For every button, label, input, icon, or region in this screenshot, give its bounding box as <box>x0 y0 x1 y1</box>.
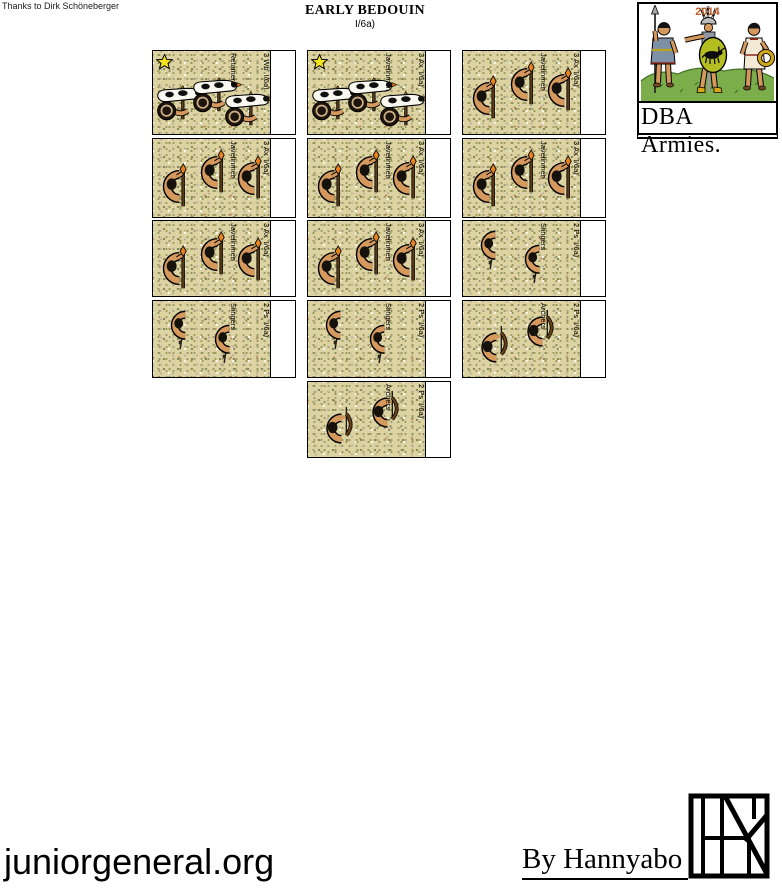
unit-card: 3 Ax I/6a) Javelinmen <box>307 50 451 135</box>
javelinmen-figure-icon <box>313 163 348 211</box>
slingers-figure-icon <box>322 309 353 353</box>
javelinmen-figure-icon <box>313 245 348 293</box>
slingers-figure-icon <box>167 309 198 353</box>
unit-card: 3 Ax I/6a) Javelinmen <box>307 220 451 297</box>
unit-code-label: 2 Ps I/6a) <box>416 384 427 418</box>
unit-label-strip: 3 Ax I/6a) Javelinmen <box>580 51 605 134</box>
unit-card: 3 Ax I/6a) Javelinmen <box>307 138 451 218</box>
unit-name-label: Retainers <box>228 53 239 90</box>
author-credit: By Hannyabo <box>522 843 688 880</box>
army-code: I/6a) <box>165 19 565 30</box>
javelinmen-figure-icon <box>158 245 193 293</box>
slingers-figure-icon <box>477 229 508 273</box>
unit-card: 3 Ax I/6a) Javelinmen <box>462 50 606 135</box>
unit-label-strip: 3 Ax I/6a) Javelinmen <box>425 221 450 296</box>
unit-card: 2 Ps I/6a) Archers <box>462 300 606 378</box>
unit-label-text: 3 Ax I/6a) Javelinmen <box>361 141 449 179</box>
unit-card: 3 Wb I/6a) Retainers <box>152 50 296 135</box>
unit-name-label: Javelinmen <box>228 141 239 179</box>
camel-riders-figure-icon <box>376 91 425 131</box>
unit-name-label: Archers <box>538 303 549 337</box>
unit-name-label: Slingers <box>228 303 239 337</box>
unit-label-strip: 3 Wb I/6a) Retainers <box>270 51 295 134</box>
unit-card: 3 Ax I/6a) Javelinmen <box>462 138 606 218</box>
unit-label-strip: 2 Ps I/6a) Archers <box>580 301 605 377</box>
camel-riders-figure-icon <box>221 91 270 131</box>
unit-code-label: 3 Ax I/6a) <box>261 141 272 179</box>
unit-label-strip: 2 Ps I/6a) Slingers <box>425 301 450 377</box>
credit-note: Thanks to Dirk Schöneberger <box>2 1 119 11</box>
unit-label-text: 2 Ps I/6a) Slingers <box>206 303 294 337</box>
unit-code-label: 3 Ax I/6a) <box>416 223 427 261</box>
unit-card: 3 Ax I/6a) Javelinmen <box>152 220 296 297</box>
unit-code-label: 2 Ps I/6a) <box>416 303 427 337</box>
hannyabo-logo-icon <box>688 792 770 880</box>
unit-label-text: 3 Ax I/6a) Javelinmen <box>516 141 604 179</box>
unit-label-text: 2 Ps I/6a) Slingers <box>361 303 449 337</box>
unit-label-text: 3 Wb I/6a) Retainers <box>206 53 294 90</box>
unit-label-text: 2 Ps I/6a) Archers <box>361 384 449 418</box>
unit-code-label: 3 Wb I/6a) <box>261 53 272 90</box>
unit-label-strip: 2 Ps I/6a) Slingers <box>580 221 605 296</box>
unit-code-label: 2 Ps I/6a) <box>571 223 582 257</box>
unit-code-label: 2 Ps I/6a) <box>261 303 272 337</box>
unit-name-label: Archers <box>383 384 394 418</box>
unit-label-text: 3 Ax I/6a) Javelinmen <box>206 223 294 261</box>
unit-label-text: 2 Ps I/6a) Archers <box>516 303 604 337</box>
general-star-icon <box>156 54 173 70</box>
army-title: EARLY BEDOUIN <box>165 3 565 19</box>
javelinmen-figure-icon <box>158 163 193 211</box>
unit-label-text: 3 Ax I/6a) Javelinmen <box>206 141 294 179</box>
unit-name-label: Slingers <box>383 303 394 337</box>
page-title-block: EARLY BEDOUIN I/6a) <box>165 3 565 30</box>
unit-code-label: 3 Ax I/6a) <box>261 223 272 261</box>
unit-code-label: 3 Ax I/6a) <box>416 53 427 91</box>
archers-figure-icon <box>318 406 359 451</box>
unit-card: 2 Ps I/6a) Archers <box>307 381 451 458</box>
dba-armies-box: 2014 <box>637 2 778 139</box>
unit-card: 2 Ps I/6a) Slingers <box>307 300 451 378</box>
unit-label-strip: 3 Ax I/6a) Javelinmen <box>425 51 450 134</box>
warriors-illustration <box>640 5 775 104</box>
unit-name-label: Javelinmen <box>383 53 394 91</box>
site-name: juniorgeneral.org <box>4 841 274 883</box>
unit-label-text: 3 Ax I/6a) Javelinmen <box>361 53 449 91</box>
archers-figure-icon <box>473 325 514 370</box>
unit-name-label: Javelinmen <box>383 141 394 179</box>
unit-code-label: 3 Ax I/6a) <box>571 53 582 91</box>
javelinmen-figure-icon <box>468 163 503 211</box>
unit-name-label: Javelinmen <box>383 223 394 261</box>
unit-name-label: Slingers <box>538 223 549 257</box>
javelinmen-figure-icon <box>468 75 503 123</box>
unit-name-label: Javelinmen <box>228 223 239 261</box>
unit-label-text: 3 Ax I/6a) Javelinmen <box>516 53 604 91</box>
unit-label-strip: 3 Ax I/6a) Javelinmen <box>425 139 450 217</box>
unit-label-strip: 3 Ax I/6a) Javelinmen <box>270 221 295 296</box>
unit-name-label: Javelinmen <box>538 141 549 179</box>
unit-code-label: 3 Ax I/6a) <box>416 141 427 179</box>
unit-label-strip: 3 Ax I/6a) Javelinmen <box>580 139 605 217</box>
unit-label-strip: 2 Ps I/6a) Slingers <box>270 301 295 377</box>
general-star-icon <box>311 54 328 70</box>
unit-card: 2 Ps I/6a) Slingers <box>462 220 606 297</box>
unit-label-text: 2 Ps I/6a) Slingers <box>516 223 604 257</box>
unit-code-label: 2 Ps I/6a) <box>571 303 582 337</box>
brand-year: 2014 <box>639 6 776 18</box>
unit-label-text: 3 Ax I/6a) Javelinmen <box>361 223 449 261</box>
unit-code-label: 3 Ax I/6a) <box>571 141 582 179</box>
unit-label-strip: 2 Ps I/6a) Archers <box>425 382 450 457</box>
unit-card: 2 Ps I/6a) Slingers <box>152 300 296 378</box>
unit-name-label: Javelinmen <box>538 53 549 91</box>
unit-card: 3 Ax I/6a) Javelinmen <box>152 138 296 218</box>
brand-caption: DBA Armies. <box>639 101 776 133</box>
unit-label-strip: 3 Ax I/6a) Javelinmen <box>270 139 295 217</box>
